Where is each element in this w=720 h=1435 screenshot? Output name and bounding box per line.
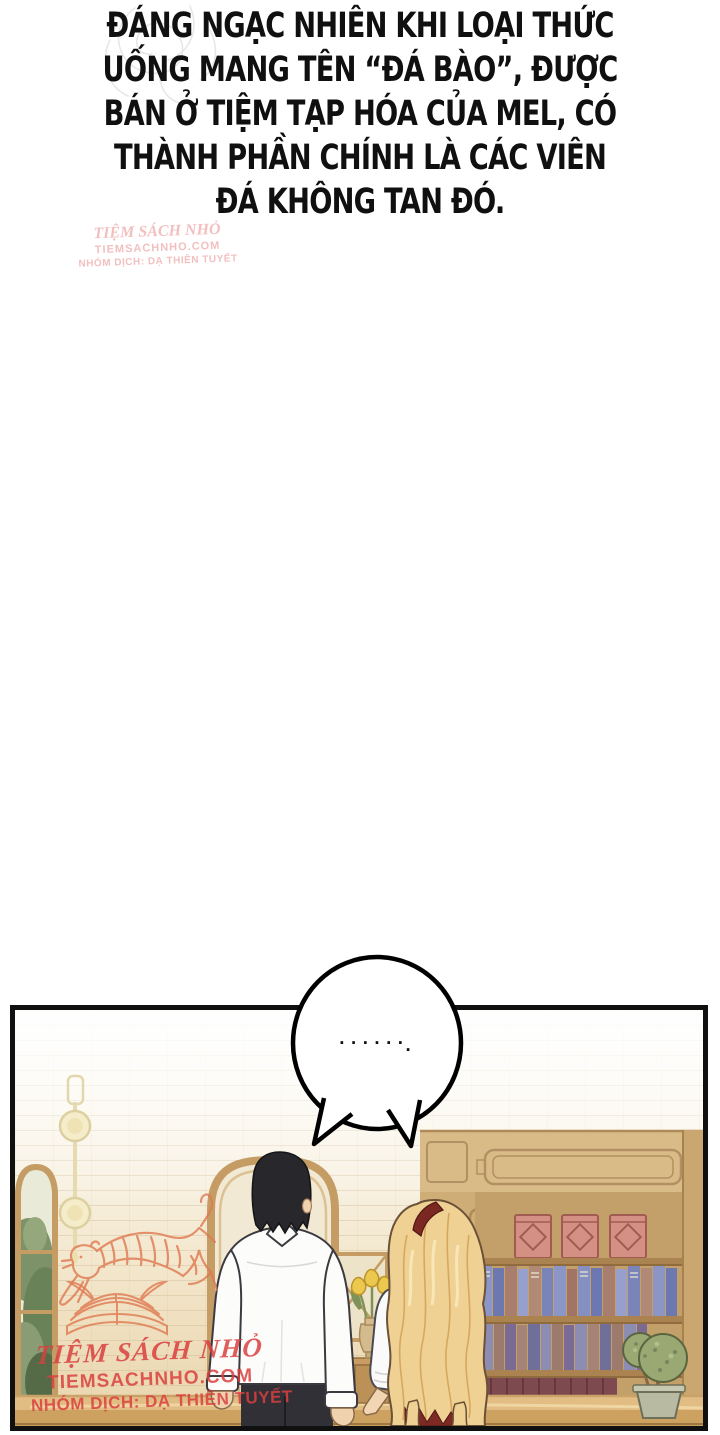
site-watermark-top: TIỆM SÁCH NHỎ TIEMSACHNHO.COM NHÓM DỊCH:…: [49, 218, 265, 271]
books-row-lower: [481, 1322, 647, 1370]
comic-page: ĐÁNG NGẠC NHIÊN KHI LOẠI THỨC UỐNG MANG …: [0, 0, 720, 1435]
narration-line: ĐÁNG NGẠC NHIÊN KHI LOẠI THỨC: [79, 4, 641, 48]
narration-line: BÁN Ở TIỆM TẠP HÓA CỦA MEL, CÓ: [79, 92, 641, 136]
books-row-upper: [479, 1264, 677, 1316]
speech-bubble: [280, 948, 476, 1163]
ellipsis-period: .: [405, 1037, 417, 1055]
speech-bubble-text: .......: [280, 1030, 476, 1048]
narration-line: ĐÁ KHÔNG TAN ĐÓ.: [79, 180, 641, 224]
narration-text: ĐÁNG NGẠC NHIÊN KHI LOẠI THỨC UỐNG MANG …: [0, 4, 720, 224]
translator-watermark: TIỆM SÁCH NHỎ TIEMSACHNHO.COM NHÓM DỊCH:…: [29, 1330, 272, 1417]
narration-line: THÀNH PHẦN CHÍNH LÀ CÁC VIÊN: [79, 136, 641, 180]
wall-lamp-icon: [60, 1076, 90, 1266]
ellipsis-dots: ......: [339, 1030, 409, 1048]
narration-line: UỐNG MANG TÊN “ĐÁ BÀO”, ĐƯỢC: [79, 48, 641, 92]
decor-boxes: [515, 1215, 646, 1258]
book-watermark: [67, 1282, 167, 1334]
woman-character: [363, 1200, 487, 1426]
